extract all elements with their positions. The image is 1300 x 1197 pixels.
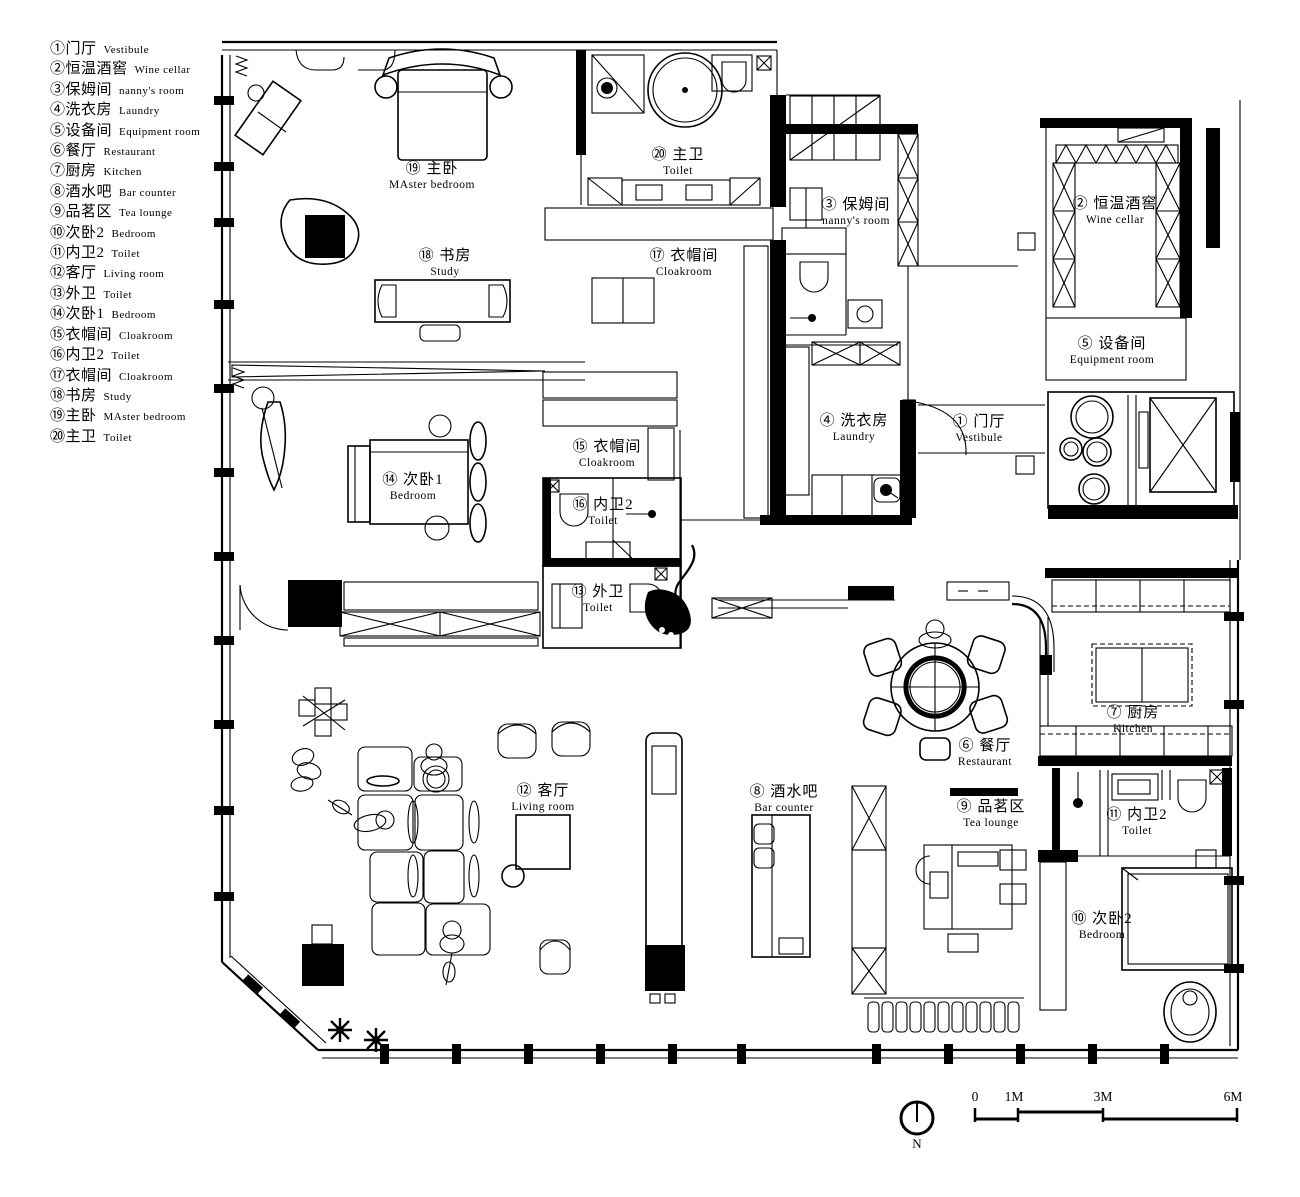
legend-item: ⑮衣帽间Cloakroom [50, 326, 240, 346]
room-label-master-toilet: ⑳ 主卫Toilet [652, 143, 705, 177]
plant-icon [328, 1018, 352, 1042]
legend-item: ⑭次卧1Bedroom [50, 305, 240, 325]
room-label-restaurant: ⑥ 餐厅Restaurant [958, 734, 1012, 768]
legend-item: ①门厅Vestibule [50, 40, 240, 60]
room-label-laundry: ④ 洗衣房Laundry [820, 409, 889, 443]
room-label-living-room: ⑫ 客厅Living room [511, 779, 574, 813]
bedroom14-furniture [240, 387, 540, 646]
legend-item: ⑯内卫2Toilet [50, 346, 240, 366]
room-label-equipment-room: ⑤ 设备间Equipment room [1070, 332, 1155, 366]
bar-counter-furniture [752, 815, 810, 957]
legend-item: ⑰衣帽间Cloakroom [50, 367, 240, 387]
scale-tick-6m: 6M [1224, 1089, 1243, 1104]
room-label-vestibule: ① 门厅Vestibule [953, 410, 1006, 444]
room-label-bedroom2: ⑩ 次卧2Bedroom [1071, 907, 1132, 941]
legend: ①门厅Vestibule ②恒温酒窖Wine cellar ③保姆间nanny'… [50, 40, 240, 448]
room-label-study: ⑱ 书房Study [419, 244, 472, 278]
legend-item: ⑪内卫2Toilet [50, 244, 240, 264]
core-walls [680, 50, 918, 525]
master-bedroom-furniture [228, 49, 585, 380]
legend-item: ④洗衣房Laundry [50, 101, 240, 121]
legend-item: ⑫客厅Living room [50, 264, 240, 284]
divider-cabinet [645, 733, 685, 1003]
room-label-bar-counter: ⑧ 酒水吧Bar counter [750, 780, 819, 814]
legend-item: ③保姆间nanny's room [50, 81, 240, 101]
floor-plan-page: { "colors": {"ink": "#000000", "paper": … [0, 0, 1300, 1197]
room-label-wine-cellar: ② 恒温酒窖Wine cellar [1073, 192, 1158, 226]
north-label: N [912, 1136, 921, 1152]
legend-item: ⑩次卧2Bedroom [50, 224, 240, 244]
room-label-cloakroom15: ⑮ 衣帽间Cloakroom [573, 435, 642, 469]
scale-tick-1m: 1M [1005, 1089, 1024, 1104]
bedroom10 [1040, 850, 1232, 1042]
legend-item: ⑱书房Study [50, 387, 240, 407]
room-label-toilet13: ⑬ 外卫Toilet [572, 580, 625, 614]
master-toilet [576, 50, 771, 205]
tea-lounge-furniture [916, 845, 1026, 952]
legend-item: ⑦厨房Kitchen [50, 162, 240, 182]
appliance-block [1048, 392, 1240, 519]
legend-item: ⑥餐厅Restaurant [50, 142, 240, 162]
legend-item: ②恒温酒窖Wine cellar [50, 60, 240, 80]
room-label-cloakroom17: ⑰ 衣帽间Cloakroom [650, 244, 719, 278]
living-room-furniture [290, 688, 590, 1052]
legend-item: ⑧酒水吧Bar counter [50, 183, 240, 203]
north-arrow-icon [901, 1102, 933, 1134]
room-label-toilet11: ⑪ 内卫2Toilet [1106, 803, 1167, 837]
room-label-tea-lounge: ⑨ 品茗区Tea lounge [957, 795, 1026, 829]
plant-icon [364, 1028, 388, 1052]
legend-item: ⑲主卧MAster bedroom [50, 407, 240, 427]
legend-item: ⑬外卫Toilet [50, 285, 240, 305]
scale-tick-3m: 3M [1094, 1089, 1113, 1104]
legend-item: ⑳主卫Toilet [50, 428, 240, 448]
room-label-bedroom1: ⑭ 次卧1Bedroom [382, 468, 443, 502]
scale-tick-0: 0 [972, 1089, 979, 1104]
legend-item: ⑤设备间Equipment room [50, 122, 240, 142]
room-label-master-bedroom: ⑲ 主卧MAster bedroom [389, 157, 475, 191]
scale-bar: 0 1M 3M 6M [972, 1089, 1243, 1122]
room-label-kitchen: ⑦ 厨房Kitchen [1107, 701, 1160, 735]
room-label-toilet16: ⑯ 内卫2Toilet [572, 493, 633, 527]
room-label-nanny-room: ③ 保姆间nanny's room [822, 193, 891, 227]
kitchen [1038, 568, 1237, 766]
legend-item: ⑨品茗区Tea lounge [50, 203, 240, 223]
